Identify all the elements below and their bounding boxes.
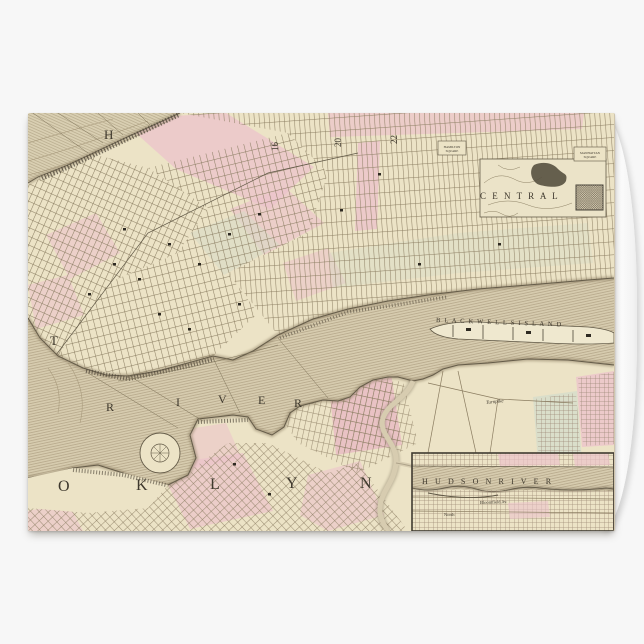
- label-square-1-line2: SQUARE: [446, 149, 459, 153]
- greeting-card-front: H U D S O N R I V E RBloomfield Av.North…: [28, 113, 615, 531]
- label-east-river-v: V: [218, 392, 227, 406]
- label-brooklyn-n: N: [360, 475, 372, 492]
- label-brooklyn-l: L: [210, 476, 220, 493]
- label-central-park: C E N T R A L: [480, 191, 560, 201]
- governors-island: [140, 433, 180, 473]
- label-east-river-e: E: [258, 393, 265, 407]
- label-east-river-r1: R: [106, 400, 114, 414]
- label-ward-16: 16: [270, 142, 280, 152]
- label-ward-20: 20: [333, 138, 343, 148]
- label-inset-north: North: [444, 512, 455, 517]
- central-park: [480, 159, 606, 217]
- label-east-river-i: I: [176, 395, 180, 409]
- label-brooklyn-y: Y: [286, 475, 298, 492]
- product-photo-stage: H U D S O N R I V E RBloomfield Av.North…: [0, 0, 644, 644]
- label-east-river-r2: R: [294, 396, 302, 410]
- label-ward-22: 22: [389, 135, 399, 144]
- label-brooklyn-k: K: [136, 477, 148, 494]
- label-east-t: T: [50, 333, 58, 348]
- vintage-nyc-map: H U D S O N R I V E RBloomfield Av.North…: [28, 113, 614, 531]
- label-square-2-line2: SQUARE: [584, 155, 597, 159]
- label-hudson-h: H: [104, 127, 113, 142]
- label-inset-hudson-river: H U D S O N R I V E R: [422, 477, 554, 486]
- label-brooklyn-o: O: [58, 478, 70, 495]
- park-reservoir: [576, 185, 603, 210]
- label-inset-bloomfield: Bloomfield Av.: [480, 499, 508, 505]
- inset-map: H U D S O N R I V E RBloomfield Av.North: [412, 453, 614, 531]
